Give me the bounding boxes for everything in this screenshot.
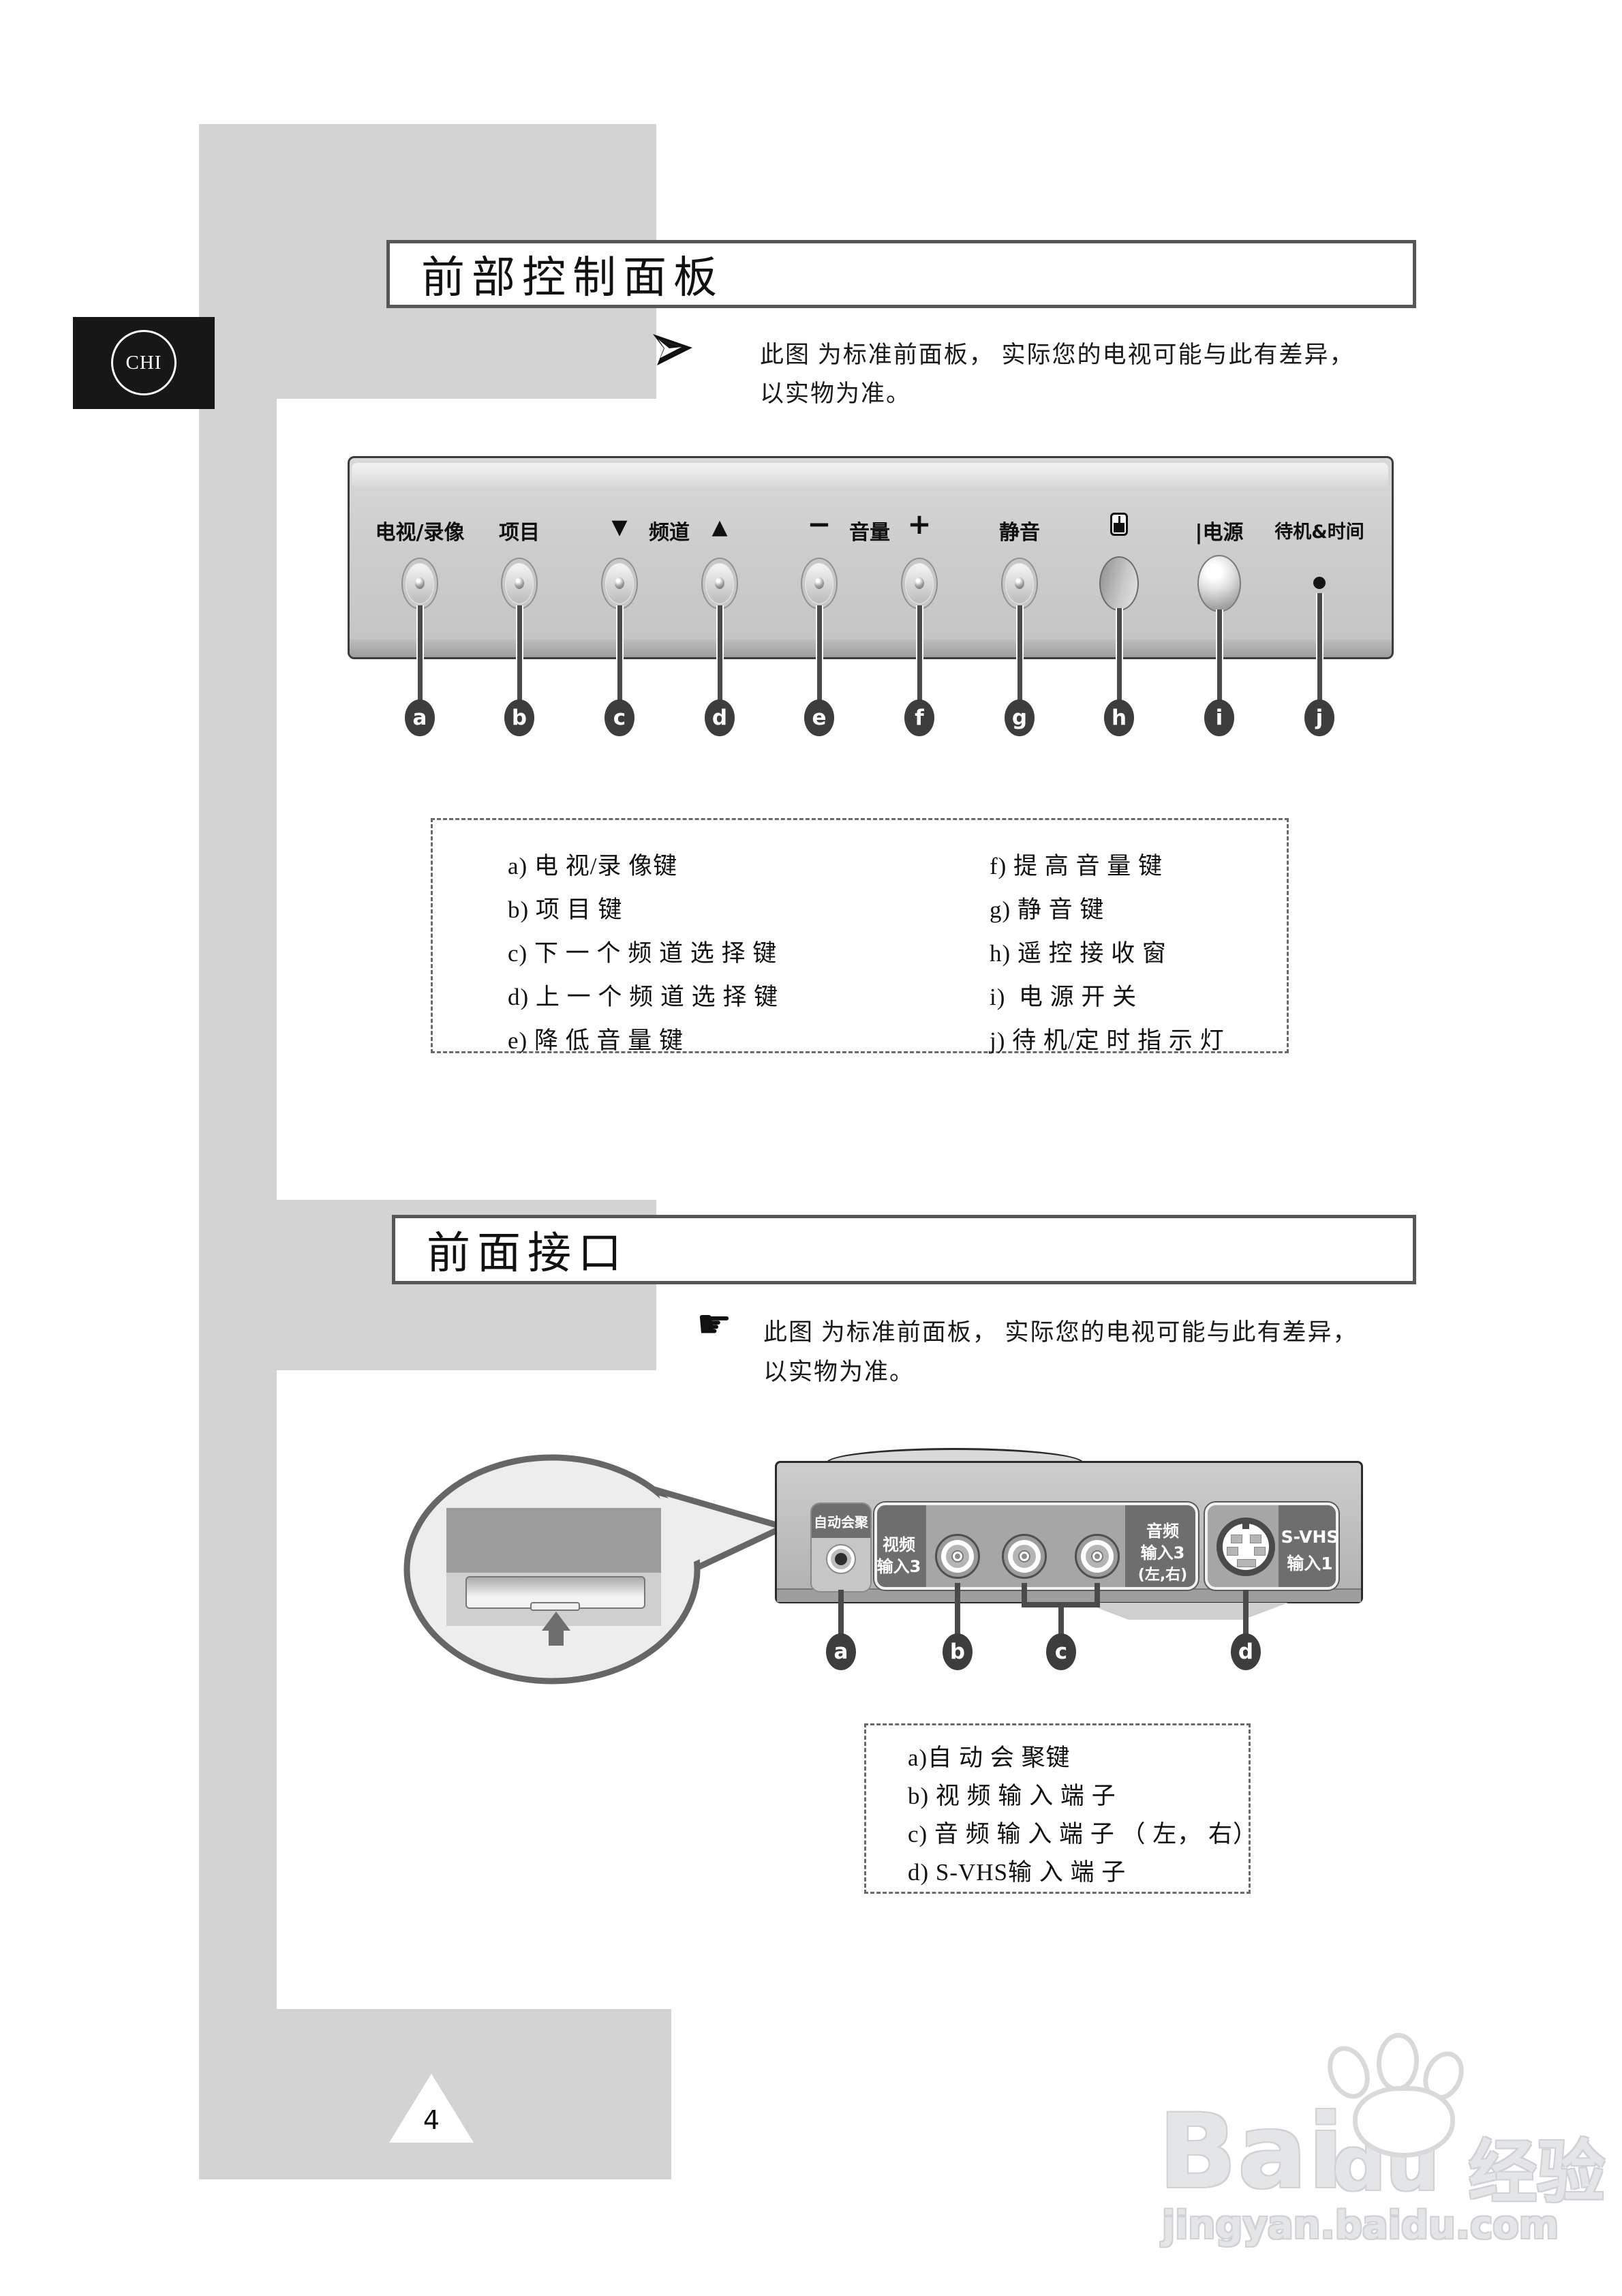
panel-highlight xyxy=(352,463,1388,487)
pointer-line-a xyxy=(416,605,424,702)
label-svhs-1: S-VHS xyxy=(1281,1527,1339,1547)
panel-bottom-shade xyxy=(350,639,1392,657)
auto-converge-unit: 自动会聚 xyxy=(812,1504,870,1591)
channel-down-icon: ▼ xyxy=(611,515,627,539)
legend-item-j: j) 待 机/定 时 指 示 灯 xyxy=(990,1021,1225,1056)
legend-item-c: c) 下 一 个 频 道 选 择 键 xyxy=(508,934,777,969)
watermark-url: jingyan.baidu.com xyxy=(1162,2203,1559,2248)
pointer-line-d xyxy=(716,605,724,702)
section2-note-line2: 以实物为准。 xyxy=(763,1353,915,1387)
pointer-line-e xyxy=(816,605,823,702)
legend-item-f: f) 提 高 音 量 键 xyxy=(990,847,1163,881)
auto-converge-label-plate: 自动会聚 xyxy=(812,1504,870,1538)
pointer-line-f xyxy=(916,605,923,702)
callout-letter: e xyxy=(804,699,834,736)
legend-item-e: e) 降 低 音 量 键 xyxy=(508,1021,684,1056)
label-audio-in-2: 输入3 xyxy=(1141,1539,1185,1563)
callout-letter: d xyxy=(1231,1633,1261,1670)
callout-letter: d xyxy=(705,699,735,736)
remote-sensor-icon xyxy=(1110,513,1128,536)
pointing-hand-icon: ☛ xyxy=(697,1301,732,1347)
callout-letter: a xyxy=(826,1633,856,1670)
callout-letter: c xyxy=(605,699,634,736)
label-standby-time: 待机&时间 xyxy=(1274,517,1364,543)
callout-letter: a xyxy=(405,699,435,736)
open-arrow-stem xyxy=(549,1629,564,1646)
label-volume: 音量 xyxy=(849,515,890,545)
channel-up-button xyxy=(701,558,738,609)
audio-right-rca-jack xyxy=(1075,1534,1120,1579)
menu-button xyxy=(501,558,538,609)
pointer-line-2c xyxy=(1058,1606,1064,1635)
paw-icon xyxy=(1315,2031,1479,2161)
pointer-line-i xyxy=(1216,609,1223,702)
label-auto-converge: 自动会聚 xyxy=(814,1511,868,1531)
standby-indicator-dot xyxy=(1313,577,1326,589)
page-number: 4 xyxy=(423,2105,440,2135)
auto-converge-jack xyxy=(826,1544,856,1574)
power-button xyxy=(1197,555,1241,612)
legend-item-a: a) 电 视/录 像键 xyxy=(508,847,677,881)
pointer-line-2d xyxy=(1243,1590,1249,1635)
pointer-line-b xyxy=(516,605,523,702)
volume-minus-icon: − xyxy=(807,507,831,541)
section2-note-line1: 此图 为标准前面板， 实际您的电视可能与此有差异， xyxy=(763,1313,1358,1348)
pointer-line-j xyxy=(1316,593,1323,702)
label-channel: 频道 xyxy=(649,515,690,545)
audio-left-rca-jack xyxy=(1002,1534,1047,1579)
language-badge-label: CHI xyxy=(111,330,177,395)
label-menu: 项目 xyxy=(499,515,540,545)
section1-note-line2: 以实物为准。 xyxy=(760,374,911,409)
legend2-item-d: d) S-VHS输 入 端 子 xyxy=(908,1853,1126,1888)
legend-item-h: h) 遥 控 接 收 窗 xyxy=(990,934,1167,969)
section2-title: 前面接口 xyxy=(427,1218,628,1281)
language-badge: CHI xyxy=(73,317,215,409)
label-power: |电源 xyxy=(1195,515,1244,545)
balloon-dark-area xyxy=(446,1508,661,1573)
label-audio-in-1: 音频 xyxy=(1146,1517,1179,1541)
watermark: Bai du 经验 jingyan.baidu.com xyxy=(1159,2031,1622,2250)
legend-item-g: g) 静 音 键 xyxy=(990,890,1104,925)
pointer-line-2a xyxy=(838,1590,844,1635)
label-video-in-2: 输入3 xyxy=(877,1553,921,1577)
callout-letter: b xyxy=(943,1633,973,1670)
callout-letter: g xyxy=(1005,699,1035,736)
balloon-flap-tab xyxy=(530,1602,580,1611)
svhs-mini-din-connector xyxy=(1216,1517,1275,1576)
pointer-line-h xyxy=(1116,608,1123,702)
legend2-item-c: c) 音 频 输 入 端 子 （ 左， 右） xyxy=(908,1815,1257,1849)
volume-plus-icon: + xyxy=(907,507,931,541)
section2-title-box: 前面接口 xyxy=(392,1215,1416,1284)
section1-note-line1: 此图 为标准前面板， 实际您的电视可能与此有差异， xyxy=(760,335,1355,370)
callout-letter: c xyxy=(1046,1633,1076,1670)
callout-letter: i xyxy=(1204,699,1234,736)
volume-up-button xyxy=(901,558,938,609)
pointer-line-g xyxy=(1016,605,1024,702)
mute-button xyxy=(1001,558,1038,609)
label-video-in-1: 视频 xyxy=(883,1531,915,1555)
callout-letter: j xyxy=(1304,699,1334,736)
remote-sensor-window xyxy=(1099,556,1139,611)
legend-item-i: i) 电 源 开 关 xyxy=(990,978,1137,1012)
legend-item-d: d) 上 一 个 频 道 选 择 键 xyxy=(508,978,778,1012)
open-arrow-icon xyxy=(542,1612,570,1631)
label-svhs-2: 输入1 xyxy=(1287,1550,1332,1575)
watermark-brand-cn: 经验 xyxy=(1469,2117,1605,2216)
pointer-line-2b xyxy=(955,1583,960,1635)
callout-letter: b xyxy=(504,699,534,736)
legend-item-b: b) 项 目 键 xyxy=(508,890,622,925)
legend2-item-b: b) 视 频 输 入 端 子 xyxy=(908,1777,1116,1811)
video-rca-jack xyxy=(935,1534,980,1579)
label-tv-vcr: 电视/录像 xyxy=(376,515,465,545)
callout-letter: f xyxy=(904,699,934,736)
manual-page: CHI 前部控制面板 此图 为标准前面板， 实际您的电视可能与此有差异， 以实物… xyxy=(0,0,1622,2296)
tv-vcr-button xyxy=(401,558,438,609)
section1-title-box: 前部控制面板 xyxy=(386,240,1416,308)
label-mute: 静音 xyxy=(999,515,1040,545)
channel-up-icon: ▲ xyxy=(711,515,727,539)
channel-down-button xyxy=(601,558,638,609)
label-audio-in-3: (左,右) xyxy=(1138,1562,1187,1584)
tv-underside-wedge xyxy=(1084,1603,1288,1620)
pointer-line-c xyxy=(616,605,624,702)
arrow-pointer-icon xyxy=(652,333,694,367)
legend2-item-a: a)自 动 会 聚键 xyxy=(908,1738,1070,1773)
callout-letter: h xyxy=(1104,699,1134,736)
section1-title: 前部控制面板 xyxy=(421,243,724,305)
volume-down-button xyxy=(801,558,838,609)
